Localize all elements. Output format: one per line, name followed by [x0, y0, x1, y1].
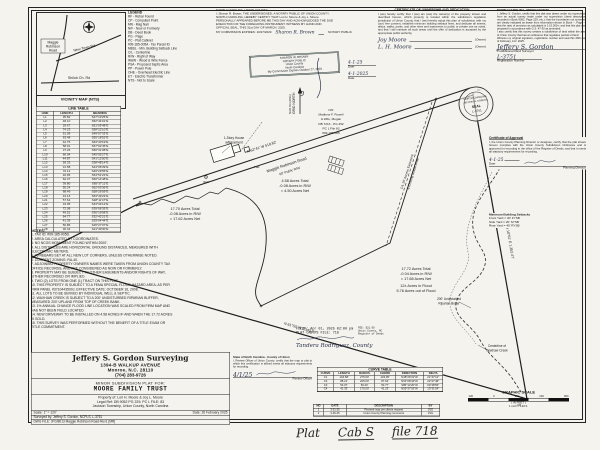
rev-description: Revised map per clients request	[347, 408, 422, 411]
line-id: L16	[37, 178, 55, 182]
ownership-certificate: CERTIFICATE OF OWNERSHIP AND DEDICATION …	[378, 9, 486, 49]
east-bearing: S 10°01′ E 1,352.47′	[505, 226, 515, 259]
note-item: ALL DISTANCES ARE HORIZONTAL GROUND DIST…	[31, 246, 174, 254]
firm-block: Jeffery S. Gordon Surveying 1394-B WALKU…	[32, 353, 230, 380]
line-bearing: S62°03′36″E	[80, 187, 121, 191]
line-length: 74.23	[54, 128, 80, 132]
scale-value: Scale: 1″ = 120′	[34, 411, 57, 415]
svg-text:Matthew F. Powell: Matthew F. Powell	[319, 113, 344, 117]
curve-id: C3	[318, 384, 335, 387]
curve-length: 88.21′	[334, 380, 355, 383]
note-item: ADJOINING PROPERTY OWNERS NAMES WERE TAK…	[31, 263, 174, 271]
line-bearing: S49°57′33″E	[80, 133, 121, 137]
new-town-rd-label: New Town Rd.	[73, 43, 96, 52]
surveyor-reg-label: Registration Number	[497, 59, 586, 62]
house-label-1: 1-Story House	[224, 136, 245, 140]
township-line: Jackson Township, Union County, North Ca…	[32, 405, 230, 409]
line-bearing: S38°48′14″E	[80, 162, 121, 166]
svg-text:& Wife, Megan: & Wife, Megan	[321, 117, 342, 121]
lot2-acreage-label: 17.70 Acres Total -0.08 Acres in R/W = 1…	[169, 207, 201, 221]
line-bearing: S32°42′21″E	[80, 216, 121, 220]
rev-desc-header: DESCRIPTION	[347, 405, 422, 408]
svg-text:-0.08 Acres in R/W: -0.08 Acres in R/W	[279, 184, 311, 188]
firm-name: Jeffery S. Gordon Surveying	[32, 354, 230, 363]
lot3-acreage-label: 17.72 Acres Total -0.04 Acres in R/W = 1…	[396, 267, 435, 293]
surveyor-cert-body: I, Jeffery S. Gordon, certify that this …	[497, 12, 586, 42]
new-lot-curve	[226, 188, 266, 306]
rev-no: 2	[314, 412, 325, 415]
length-col-header: LENGTH	[54, 112, 80, 116]
line-bearing: S55°18′52″E	[80, 137, 121, 141]
title-block: Jeffery S. Gordon Surveying 1394-B WALKU…	[31, 352, 230, 424]
road-bearing: N 62°41′ W 519.82′	[246, 140, 277, 154]
line-bearing: S54°51′22″E	[80, 174, 121, 178]
line-length: 55.24	[54, 187, 80, 191]
scanned-plat-sheet: { "vicinity": { "caption": "VICINITY MAP…	[0, 0, 600, 450]
rev-by-header: BY	[422, 405, 440, 408]
vicinity-map-drawing: Maggie Robinson Road New Town Rd. Shiloh…	[37, 13, 123, 95]
owner-dates: 4-1-25 Date 4-1-2025 Date	[348, 60, 393, 83]
filed-side-line: Register of Deeds	[358, 333, 384, 336]
revision-table: NO DATE DESCRIPTION BY 1 3-21-25 Revised…	[313, 404, 440, 416]
line-bearing: S25°27′07″E	[80, 224, 121, 228]
svg-text:4.58 Acres Total: 4.58 Acres Total	[282, 179, 309, 183]
approval-date-label: Date	[489, 162, 495, 165]
line-id: L25	[37, 216, 55, 220]
datum-label: NAD 83 (2011)	[288, 94, 292, 114]
note-item: WAXHAW CREEK IS SUBJECT TO A 200′ UNDIST…	[31, 296, 174, 304]
line-length: 39.80	[54, 182, 80, 186]
curve-delta-header: DELTA	[424, 372, 443, 376]
curve-chord-header: CHORD	[375, 372, 396, 376]
owner-label: (Owner)	[475, 45, 486, 48]
owner-signature-row: L. H. Moore (Owner)	[378, 45, 486, 48]
line-bearing: S49°29′55″E	[80, 170, 121, 174]
owner-date-label: Date	[348, 66, 393, 69]
svg-text:PC L File 83: PC L File 83	[323, 126, 340, 130]
notes-block: NOTES: TAX ID: #09-185-005D.AREA CALCULA…	[31, 229, 174, 330]
line-length: 64.77	[54, 216, 80, 220]
line-bearing: S41°12′50″E	[80, 157, 121, 161]
review-officer-block: State of North Carolina - County of Unio…	[233, 356, 312, 381]
handwriting-plat: Plat	[296, 426, 320, 441]
curve-direction: N55°37′02″W	[396, 388, 425, 391]
approval-sig-label: Planning Director	[489, 166, 586, 169]
curve-radius: 50.00′	[355, 384, 376, 387]
line-bearing: S47°13′25″E	[80, 116, 121, 120]
line-bearing: S45°55′27″E	[80, 153, 121, 157]
notary-expires: MY COMMISSION EXPIRES: 10/27/2029	[216, 31, 271, 34]
curve-chord: 50.77′	[375, 384, 396, 387]
line-id: L3	[37, 124, 55, 128]
line-id: L19	[37, 191, 55, 195]
line-length: 72.08	[54, 207, 80, 211]
creek-label-1: Centerline of	[488, 344, 506, 348]
date-value: Date: 26 February 2025	[193, 411, 228, 415]
lot1-acreage-label: 4.58 Acres Total -0.08 Acres in R/W = 4.…	[279, 179, 311, 193]
line-id: L18	[37, 187, 55, 191]
ownership-body: I (we) hereby certify that I (we) am (ar…	[378, 13, 486, 35]
note-item: 1% ANNUAL CHANCE FLOOD LINE LOCATION WAS…	[31, 305, 174, 313]
curve-delta: 13°31′54″	[424, 388, 443, 391]
dwg-file-line: DWG FILE: JFG/8013 Maggie Robinson Road-…	[32, 420, 230, 424]
owner-signature: L. H. Moore	[378, 45, 412, 48]
line-id: L13	[37, 166, 55, 170]
svg-text:= 4.50 Acres Net: = 4.50 Acres Net	[281, 189, 310, 193]
graphic-scale: GRAPHIC SCALE 1200120240360 ( IN FEET ) …	[466, 390, 571, 409]
line-bearing: S39°56′35″E	[80, 207, 121, 211]
line-id: L17	[37, 182, 55, 186]
property-block: Property of: Lori H. Moore & Joy L. Moor…	[32, 395, 230, 410]
svg-text:-0.08 Acres in R/W: -0.08 Acres in R/W	[169, 212, 201, 216]
curve-table: CURVE TABLE CURVE LENGTH RADIUS CHORD DI…	[317, 367, 443, 392]
line-bearing: S58°26′59″E	[80, 191, 121, 195]
curve-radius: 175.00′	[355, 388, 376, 391]
notary-body: NORTH CAROLINA, UNION COUNTY I, Sharon R…	[216, 9, 352, 30]
line-bearing: S44°06′39″E	[80, 166, 121, 170]
line-id: L21	[37, 199, 55, 203]
note-item: THIS SURVEY WAS PERFORMED WITHOUT THE BE…	[31, 321, 174, 329]
curve-chord: 103.95′	[375, 376, 396, 379]
rev-date-header: DATE	[324, 405, 347, 408]
line-id: L10	[37, 153, 55, 157]
curve-delta: 21°47′12″	[424, 376, 443, 379]
line-id: L24	[37, 211, 55, 215]
setbacks-block: Minimum Building Setbacks Front Yard = 4…	[489, 213, 575, 228]
curve-length: 53.07′	[334, 384, 355, 387]
curve-delta: 22°27′48″	[424, 380, 443, 383]
line-length: 44.87	[54, 157, 80, 161]
line-bearing: S58°22′10″E	[80, 128, 121, 132]
svg-text:= 17.68 Acres Net: = 17.68 Acres Net	[401, 277, 432, 281]
owner-date: 4-1-2025 Date	[348, 72, 393, 81]
line-id: L2	[37, 120, 55, 124]
curve-direction-header: DIRECTION	[396, 372, 425, 376]
curve-direction: N48°26′31″W	[396, 376, 425, 379]
curve-length-header: LENGTH	[334, 372, 355, 376]
grid-north-label: GRID NORTH	[292, 92, 296, 114]
line-bearing: S48°11′47″E	[80, 199, 121, 203]
access-easement-line	[386, 102, 432, 246]
graphic-scale-title: GRAPHIC SCALE	[466, 390, 571, 395]
approval-body: I, the Union County Planning Director or…	[489, 141, 586, 154]
vicinity-map: Maggie Robinson Road New Town Rd. Shiloh…	[36, 12, 126, 109]
curve-delta: 60°48′55″	[424, 384, 443, 387]
north-arrow	[298, 87, 304, 114]
legend-items: RF - Rebar FoundCP - Computed PointMN - …	[128, 15, 217, 83]
curve-direction: S85°12′20″W	[396, 384, 425, 387]
rev-no-header: NO	[314, 405, 325, 408]
rev-description: Union County Planning comments	[347, 412, 422, 415]
approval-certificate: Certificate of Approval I, the Union Cou…	[489, 137, 586, 170]
surveyor-certificate: NORTH CAROLINA, UNION COUNTY I, Jeffery …	[497, 9, 586, 63]
scale-inch-label: 1 inch = 120 ft.	[466, 405, 571, 409]
line-length: 42.75	[54, 141, 80, 145]
line-id: L4	[37, 128, 55, 132]
line-length: 41.39	[54, 220, 80, 224]
line-length: 34.95	[54, 203, 80, 207]
bottom-handwriting: Plat Cab S file 718	[296, 424, 438, 441]
svg-text:12± Acres in Flood: 12± Acres in Flood	[400, 284, 431, 288]
client-name: MOORE FAMILY TRUST	[32, 386, 230, 394]
line-length: 66.04	[54, 153, 80, 157]
line-id: L7	[37, 141, 55, 145]
line-bearing: S57°02′45″E	[80, 145, 121, 149]
review-date: 4/1/25	[233, 374, 252, 377]
line-id: L26	[37, 220, 55, 224]
note-item: NEW DRIVEWAY TO BE INSTALLED ON 4.58 ACR…	[31, 313, 174, 321]
line-length: 37.26	[54, 149, 80, 153]
owner-date-label: Date	[348, 77, 393, 80]
line-length: 68.49	[54, 191, 80, 195]
line-bearing: S61°05′48″E	[80, 124, 121, 128]
line-id: L1	[37, 116, 55, 120]
svg-text:17.72 Acres Total: 17.72 Acres Total	[401, 267, 430, 271]
vicinity-caption: VICINITY MAP (NTS)	[38, 97, 122, 102]
line-id: L9	[37, 149, 55, 153]
pad-label: Pad	[254, 165, 260, 169]
svg-text:DB 7213 - PG 252: DB 7213 - PG 252	[318, 122, 344, 126]
line-id: L11	[37, 157, 55, 161]
curve-direction: N51°08′44″W	[396, 380, 425, 383]
line-id: L22	[37, 203, 55, 207]
note-item: THIS PROPERTY IS SUBJECT TO A FEMA SPECI…	[31, 284, 174, 292]
shiloh-ch-rd-label: Shiloh Ch. Rd	[68, 76, 90, 80]
curve-length: 41.33′	[334, 388, 355, 391]
creek-label-2: Waxhaw Creek	[486, 349, 508, 353]
svg-text:N/F: N/F	[329, 108, 334, 112]
line-length: 62.37	[54, 178, 80, 182]
setback-line: Rear Yard = 40′ RYSB	[489, 224, 575, 228]
line-id: L8	[37, 145, 55, 149]
curve-radius: 275.00′	[355, 376, 376, 379]
line-length: 56.86	[54, 224, 80, 228]
buffer-label-1: 200′ Undisturbed	[437, 297, 461, 301]
rev-by: JSG	[422, 412, 440, 415]
line-length: 49.51	[54, 211, 80, 215]
owner-date: 4-1-25 Date	[348, 60, 393, 69]
line-length: 43.16	[54, 195, 80, 199]
notary-certificate: NORTH CAROLINA, UNION COUNTY I, Sharon R…	[216, 9, 352, 35]
compass-rose-icon	[84, 22, 95, 33]
creek-leader	[478, 345, 487, 350]
line-bearing: S53°49′23″E	[80, 195, 121, 199]
house-label-2: w/Basement	[225, 141, 243, 145]
septic-area-symbol	[326, 156, 346, 175]
plat-for-block: MINOR SUBDIVISION PLAT FOR: MOORE FAMILY…	[32, 379, 230, 395]
line-id: L6	[37, 137, 55, 141]
line-id: L14	[37, 170, 55, 174]
line-table: LINE TABLE LINE LENGTH BEARING L1 35.82 …	[36, 106, 121, 233]
register-handwriting: Tandera Rodriguez, County	[296, 343, 392, 347]
curve-table-row: C4 41.33′ 175.00′ 41.23′ N55°37′02″W 13°…	[318, 388, 443, 392]
curve-radius-header: RADIUS	[355, 372, 376, 376]
buffer-label-2: Riparian Buffer	[438, 302, 460, 306]
svg-text:17.70 Acres Total: 17.70 Acres Total	[170, 207, 199, 211]
owner-label: (Owner)	[475, 38, 486, 41]
line-length: 29.67	[54, 124, 80, 128]
firm-phone: (704) 283-9726	[32, 373, 230, 378]
line-bearing: S50°31′08″E	[80, 149, 121, 153]
line-length: 58.91	[54, 145, 80, 149]
line-bearing: S52°44′01″E	[80, 120, 121, 124]
svg-text:5.76 Acres out of Flood: 5.76 Acres out of Flood	[396, 289, 435, 293]
line-id: L20	[37, 195, 55, 199]
rev-date: 3-21-25	[324, 408, 347, 411]
line-bearing: S65°37′11″E	[80, 182, 121, 186]
line-length: 70.12	[54, 170, 80, 174]
rev-by: JSG	[422, 408, 440, 411]
line-bearing: S60°14′48″E	[80, 178, 121, 182]
line-length: 35.82	[54, 116, 80, 120]
curve-id: C1	[318, 376, 335, 379]
register-signature	[296, 336, 356, 342]
line-length: 48.10	[54, 120, 80, 124]
line-length: 59.33	[54, 162, 80, 166]
flood-line	[450, 172, 492, 344]
vicinity-caption-divider	[37, 95, 125, 96]
ownership-title: CERTIFICATE OF OWNERSHIP AND DEDICATION	[378, 9, 486, 12]
rev-no: 1	[314, 408, 325, 411]
line-col-header: LINE	[37, 112, 55, 116]
line-id: L12	[37, 162, 55, 166]
svg-text:-0.04 Acres in R/W: -0.04 Acres in R/W	[400, 272, 432, 276]
line-id: L15	[37, 174, 55, 178]
well-label: Well	[203, 180, 209, 184]
line-length: 31.58	[54, 166, 80, 170]
handwriting-file: file 718	[392, 424, 438, 440]
curve-id: C4	[318, 388, 335, 391]
note-item: PROPERTY MAY BE SUBJECT TO OTHER EASEMEN…	[31, 271, 174, 279]
buffer-leader	[459, 302, 471, 308]
line-id: L23	[37, 207, 55, 211]
revision-row: 2 3-26-25 Union County Planning comments…	[314, 412, 440, 416]
bearing-col-header: BEARING	[80, 112, 121, 116]
line-length: 57.62	[54, 199, 80, 203]
legend: LEGEND RF - Rebar FoundCP - Computed Poi…	[128, 11, 217, 83]
curve-chord: 41.23′	[375, 388, 396, 391]
line-bearing: S43°34′12″E	[80, 203, 121, 207]
notary-signature: Sharon R. Brown	[275, 31, 314, 34]
curve-length: 104.58′	[334, 376, 355, 379]
rev-date: 3-26-25	[324, 412, 347, 415]
owner-signature-row: Joy Moore (Owner)	[378, 38, 486, 41]
line-id: L5	[37, 133, 55, 137]
line-bearing: S63°40′19″E	[80, 141, 121, 145]
handwriting-cab: Cab S	[338, 425, 374, 441]
well-symbol	[205, 176, 208, 179]
curve-radius: 225.00′	[355, 380, 376, 383]
owner-signature: Joy Moore	[378, 38, 407, 41]
waxhaw-creek-line	[456, 168, 521, 392]
line-id: L27	[37, 224, 55, 228]
filed-stamp: FILED: Apr 01, 2025 02:00 pm PLAT CAB: S…	[296, 327, 392, 348]
svg-text:#09-185-005: #09-185-005	[322, 131, 340, 135]
review-officer-signature	[255, 370, 297, 377]
planning-director-signature	[523, 158, 558, 166]
line-length: 51.09	[54, 133, 80, 137]
curve-chord: 87.64′	[375, 380, 396, 383]
curve-id: C2	[318, 380, 335, 383]
line-bearing: S36°19′58″E	[80, 211, 121, 215]
notary-sig-label: NOTARY PUBLIC	[328, 31, 352, 34]
line-length: 46.95	[54, 174, 80, 178]
vicinity-road-label-3: Road	[49, 49, 57, 53]
approval-title: Certificate of Approval	[489, 137, 586, 140]
curve-col-header: CURVE	[318, 372, 335, 376]
review-body: I, Review Officer of Union County, certi…	[233, 359, 312, 368]
line-bearing: S29°04′44″E	[80, 220, 121, 224]
svg-text:= 17.62 Acres Net: = 17.62 Acres Net	[170, 217, 201, 221]
legend-item: NTS - Not to Scale	[128, 79, 217, 83]
line-length: 63.48	[54, 137, 80, 141]
